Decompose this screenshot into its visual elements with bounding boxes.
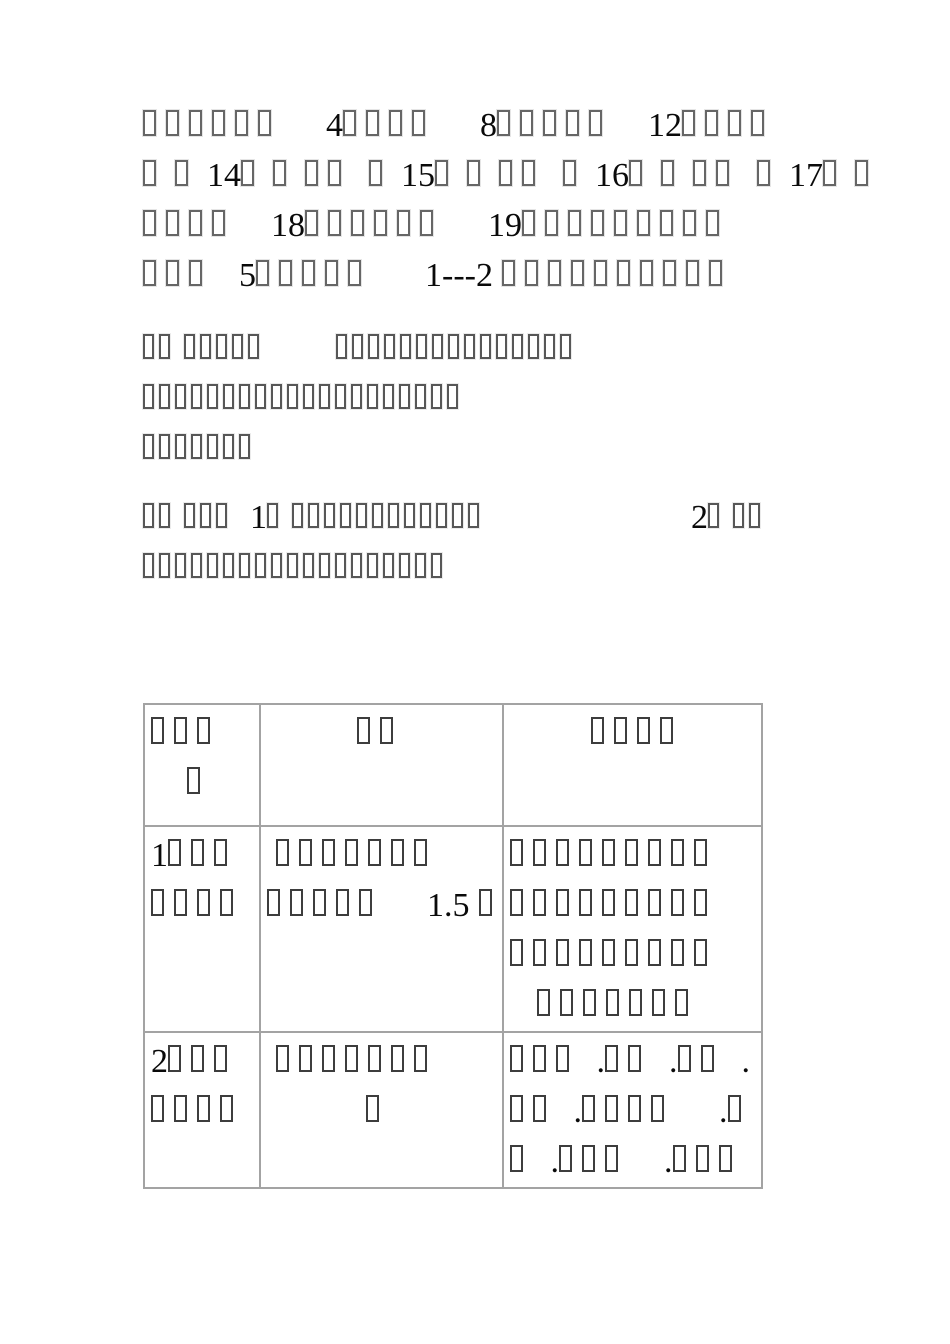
missing-glyph-box	[143, 503, 154, 528]
missing-glyph-box	[197, 889, 210, 916]
missing-glyph-box	[143, 334, 154, 359]
missing-glyph-box	[271, 384, 282, 409]
text-line	[143, 324, 873, 374]
missing-glyph-box	[255, 553, 266, 578]
missing-glyph-box	[706, 210, 719, 236]
missing-glyph-box	[625, 839, 638, 866]
missing-glyph-box	[548, 260, 561, 286]
missing-glyph-box	[415, 553, 426, 578]
cell-line: ..	[510, 1087, 761, 1137]
missing-glyph-box	[143, 160, 156, 186]
cell-line: ...	[510, 1037, 761, 1087]
missing-glyph-box	[308, 503, 319, 528]
document-table: 1 1.5 2	[143, 703, 763, 1189]
missing-glyph-box	[571, 260, 584, 286]
missing-glyph-box	[678, 1045, 691, 1072]
missing-glyph-box	[384, 334, 395, 359]
table-cell	[260, 1032, 503, 1188]
missing-glyph-box	[502, 260, 515, 286]
missing-glyph-box	[625, 889, 638, 916]
missing-glyph-box	[303, 553, 314, 578]
missing-glyph-box	[602, 839, 615, 866]
table-cell: 1	[144, 826, 260, 1032]
missing-glyph-box	[151, 889, 164, 916]
missing-glyph-box	[436, 503, 447, 528]
missing-glyph-box	[728, 1095, 741, 1122]
missing-glyph-box	[216, 334, 227, 359]
missing-glyph-box	[719, 1145, 732, 1172]
missing-glyph-box	[420, 210, 433, 236]
missing-glyph-box	[174, 889, 187, 916]
cell-line	[267, 709, 502, 759]
missing-glyph-box	[191, 384, 202, 409]
missing-glyph-box	[368, 839, 381, 866]
missing-glyph-box	[671, 889, 684, 916]
missing-glyph-box	[212, 210, 225, 236]
missing-glyph-box	[708, 503, 719, 528]
table-cell	[503, 826, 762, 1032]
paragraph-3: 12	[143, 493, 873, 593]
missing-glyph-box	[709, 260, 722, 286]
missing-glyph-box	[510, 839, 523, 866]
text-line: 12	[143, 493, 873, 543]
missing-glyph-box	[628, 1045, 641, 1072]
table-header-cell	[144, 704, 260, 826]
missing-glyph-box	[248, 334, 259, 359]
missing-glyph-box	[220, 1095, 233, 1122]
missing-glyph-box	[589, 110, 602, 136]
cell-line: 1	[151, 831, 259, 881]
missing-glyph-box	[191, 1045, 204, 1072]
missing-glyph-box	[591, 210, 604, 236]
missing-glyph-box	[733, 503, 744, 528]
missing-glyph-box	[543, 110, 556, 136]
missing-glyph-box	[258, 110, 271, 136]
missing-glyph-box	[352, 334, 363, 359]
missing-glyph-box	[728, 110, 741, 136]
missing-glyph-box	[175, 434, 186, 459]
missing-glyph-box	[397, 210, 410, 236]
missing-glyph-box	[391, 839, 404, 866]
missing-glyph-box	[464, 334, 475, 359]
cell-line	[151, 759, 259, 809]
missing-glyph-box	[336, 889, 349, 916]
missing-glyph-box	[683, 210, 696, 236]
missing-glyph-box	[380, 717, 393, 744]
missing-glyph-box	[267, 889, 280, 916]
missing-glyph-box	[673, 1145, 686, 1172]
document-content: 4812 14151617 1819 51---2 12	[143, 101, 873, 1189]
missing-glyph-box	[143, 434, 154, 459]
missing-glyph-box	[239, 553, 250, 578]
missing-glyph-box	[366, 110, 379, 136]
missing-glyph-box	[322, 839, 335, 866]
missing-glyph-box	[367, 553, 378, 578]
cell-line: 1.5	[267, 881, 502, 931]
cell-line	[267, 831, 502, 881]
missing-glyph-box	[545, 210, 558, 236]
missing-glyph-box	[602, 939, 615, 966]
missing-glyph-box	[216, 503, 227, 528]
missing-glyph-box	[663, 260, 676, 286]
missing-glyph-box	[267, 503, 278, 528]
missing-glyph-box	[823, 160, 836, 186]
missing-glyph-box	[537, 989, 550, 1016]
missing-glyph-box	[271, 553, 282, 578]
missing-glyph-box	[696, 1145, 709, 1172]
missing-glyph-box	[579, 889, 592, 916]
missing-glyph-box	[399, 553, 410, 578]
missing-glyph-box	[174, 717, 187, 744]
missing-glyph-box	[640, 260, 653, 286]
missing-glyph-box	[566, 110, 579, 136]
missing-glyph-box	[214, 839, 227, 866]
cell-line: ..	[510, 1137, 761, 1187]
missing-glyph-box	[189, 210, 202, 236]
missing-glyph-box	[614, 717, 627, 744]
missing-glyph-box	[512, 334, 523, 359]
missing-glyph-box	[348, 260, 361, 286]
text-line: 14151617	[143, 151, 873, 201]
missing-glyph-box	[369, 160, 382, 186]
missing-glyph-box	[431, 384, 442, 409]
table-cell: ... .. ..	[503, 1032, 762, 1188]
missing-glyph-box	[143, 384, 154, 409]
cell-line	[510, 709, 761, 759]
missing-glyph-box	[328, 210, 341, 236]
cell-line	[151, 881, 259, 931]
missing-glyph-box	[175, 553, 186, 578]
missing-glyph-box	[855, 160, 868, 186]
missing-glyph-box	[591, 717, 604, 744]
cell-line: 2	[151, 1037, 259, 1087]
missing-glyph-box	[319, 384, 330, 409]
missing-glyph-box	[159, 503, 170, 528]
missing-glyph-box	[388, 503, 399, 528]
missing-glyph-box	[212, 110, 225, 136]
missing-glyph-box	[159, 434, 170, 459]
missing-glyph-box	[143, 553, 154, 578]
paragraph-2	[143, 324, 873, 474]
missing-glyph-box	[533, 839, 546, 866]
missing-glyph-box	[336, 334, 347, 359]
missing-glyph-box	[168, 1045, 181, 1072]
missing-glyph-box	[191, 553, 202, 578]
missing-glyph-box	[325, 260, 338, 286]
missing-glyph-box	[328, 160, 341, 186]
missing-glyph-box	[374, 210, 387, 236]
missing-glyph-box	[682, 110, 695, 136]
missing-glyph-box	[560, 989, 573, 1016]
missing-glyph-box	[404, 503, 415, 528]
missing-glyph-box	[510, 1045, 523, 1072]
missing-glyph-box	[276, 1045, 289, 1072]
missing-glyph-box	[239, 384, 250, 409]
missing-glyph-box	[322, 1045, 335, 1072]
missing-glyph-box	[255, 384, 266, 409]
missing-glyph-box	[151, 1095, 164, 1122]
cell-line	[510, 831, 761, 881]
document-page: 4812 14151617 1819 51---2 12	[0, 0, 950, 1344]
missing-glyph-box	[235, 110, 248, 136]
missing-glyph-box	[602, 889, 615, 916]
missing-glyph-box	[452, 503, 463, 528]
missing-glyph-box	[391, 1045, 404, 1072]
missing-glyph-box	[648, 889, 661, 916]
table-header-cell	[503, 704, 762, 826]
missing-glyph-box	[559, 1145, 572, 1172]
missing-glyph-box	[184, 334, 195, 359]
missing-glyph-box	[191, 839, 204, 866]
missing-glyph-box	[299, 839, 312, 866]
missing-glyph-box	[448, 334, 459, 359]
missing-glyph-box	[497, 110, 510, 136]
missing-glyph-box	[400, 334, 411, 359]
missing-glyph-box	[191, 434, 202, 459]
missing-glyph-box	[749, 503, 760, 528]
missing-glyph-box	[345, 1045, 358, 1072]
missing-glyph-box	[605, 1045, 618, 1072]
missing-glyph-box	[628, 1095, 641, 1122]
missing-glyph-box	[693, 160, 706, 186]
missing-glyph-box	[468, 503, 479, 528]
text-line: 1819	[143, 201, 873, 251]
missing-glyph-box	[579, 839, 592, 866]
missing-glyph-box	[629, 160, 642, 186]
missing-glyph-box	[520, 110, 533, 136]
missing-glyph-box	[606, 989, 619, 1016]
missing-glyph-box	[351, 210, 364, 236]
missing-glyph-box	[372, 503, 383, 528]
missing-glyph-box	[340, 503, 351, 528]
missing-glyph-box	[435, 160, 448, 186]
cell-line	[151, 709, 259, 759]
missing-glyph-box	[522, 210, 535, 236]
missing-glyph-box	[496, 334, 507, 359]
cell-line	[510, 881, 761, 931]
text-line	[143, 424, 873, 474]
missing-glyph-box	[223, 553, 234, 578]
missing-glyph-box	[544, 334, 555, 359]
missing-glyph-box	[292, 503, 303, 528]
paragraph-1: 4812 14151617 1819 51---2	[143, 101, 873, 301]
missing-glyph-box	[189, 260, 202, 286]
missing-glyph-box	[159, 334, 170, 359]
missing-glyph-box	[166, 260, 179, 286]
cell-line	[267, 1037, 502, 1087]
missing-glyph-box	[389, 110, 402, 136]
missing-glyph-box	[414, 1045, 427, 1072]
missing-glyph-box	[357, 717, 370, 744]
missing-glyph-box	[675, 989, 688, 1016]
missing-glyph-box	[305, 160, 318, 186]
missing-glyph-box	[345, 839, 358, 866]
missing-glyph-box	[184, 503, 195, 528]
missing-glyph-box	[343, 110, 356, 136]
missing-glyph-box	[175, 160, 188, 186]
table-row: 1 1.5	[144, 826, 762, 1032]
missing-glyph-box	[412, 110, 425, 136]
missing-glyph-box	[661, 160, 674, 186]
missing-glyph-box	[279, 260, 292, 286]
missing-glyph-box	[694, 889, 707, 916]
missing-glyph-box	[533, 939, 546, 966]
missing-glyph-box	[582, 1095, 595, 1122]
missing-glyph-box	[716, 160, 729, 186]
missing-glyph-box	[582, 1145, 595, 1172]
missing-glyph-box	[694, 939, 707, 966]
missing-glyph-box	[143, 260, 156, 286]
missing-glyph-box	[479, 889, 492, 916]
missing-glyph-box	[579, 939, 592, 966]
missing-glyph-box	[175, 384, 186, 409]
missing-glyph-box	[432, 334, 443, 359]
missing-glyph-box	[241, 160, 254, 186]
table-row: 2 ... .. ..	[144, 1032, 762, 1188]
missing-glyph-box	[629, 989, 642, 1016]
missing-glyph-box	[174, 1095, 187, 1122]
missing-glyph-box	[290, 889, 303, 916]
missing-glyph-box	[302, 260, 315, 286]
missing-glyph-box	[207, 434, 218, 459]
missing-glyph-box	[335, 384, 346, 409]
missing-glyph-box	[556, 939, 569, 966]
table-cell: 1.5	[260, 826, 503, 1032]
missing-glyph-box	[614, 210, 627, 236]
missing-glyph-box	[368, 1045, 381, 1072]
missing-glyph-box	[159, 553, 170, 578]
missing-glyph-box	[605, 1095, 618, 1122]
missing-glyph-box	[366, 1095, 379, 1122]
missing-glyph-box	[705, 110, 718, 136]
missing-glyph-box	[757, 160, 770, 186]
missing-glyph-box	[651, 1095, 664, 1122]
missing-glyph-box	[447, 384, 458, 409]
missing-glyph-box	[313, 889, 326, 916]
cell-line	[151, 1087, 259, 1137]
missing-glyph-box	[273, 160, 286, 186]
missing-glyph-box	[686, 260, 699, 286]
missing-glyph-box	[560, 334, 571, 359]
missing-glyph-box	[223, 434, 234, 459]
missing-glyph-box	[652, 989, 665, 1016]
missing-glyph-box	[420, 503, 431, 528]
missing-glyph-box	[583, 989, 596, 1016]
missing-glyph-box	[671, 839, 684, 866]
missing-glyph-box	[207, 384, 218, 409]
table-cell: 2	[144, 1032, 260, 1188]
missing-glyph-box	[305, 210, 318, 236]
missing-glyph-box	[159, 384, 170, 409]
missing-glyph-box	[751, 110, 764, 136]
missing-glyph-box	[151, 717, 164, 744]
missing-glyph-box	[528, 334, 539, 359]
missing-glyph-box	[533, 889, 546, 916]
missing-glyph-box	[166, 210, 179, 236]
cell-line	[267, 1087, 502, 1137]
missing-glyph-box	[299, 1045, 312, 1072]
missing-glyph-box	[319, 553, 330, 578]
missing-glyph-box	[525, 260, 538, 286]
missing-glyph-box	[637, 717, 650, 744]
missing-glyph-box	[143, 210, 156, 236]
missing-glyph-box	[324, 503, 335, 528]
missing-glyph-box	[467, 160, 480, 186]
missing-glyph-box	[660, 717, 673, 744]
missing-glyph-box	[510, 939, 523, 966]
missing-glyph-box	[510, 1095, 523, 1122]
missing-glyph-box	[533, 1095, 546, 1122]
missing-glyph-box	[351, 553, 362, 578]
missing-glyph-box	[556, 839, 569, 866]
missing-glyph-box	[239, 434, 250, 459]
cell-line	[510, 931, 761, 981]
missing-glyph-box	[287, 553, 298, 578]
missing-glyph-box	[383, 384, 394, 409]
text-line	[143, 543, 873, 593]
missing-glyph-box	[480, 334, 491, 359]
cell-line	[510, 981, 761, 1031]
missing-glyph-box	[276, 839, 289, 866]
missing-glyph-box	[367, 384, 378, 409]
missing-glyph-box	[556, 1045, 569, 1072]
missing-glyph-box	[694, 839, 707, 866]
missing-glyph-box	[335, 553, 346, 578]
missing-glyph-box	[594, 260, 607, 286]
missing-glyph-box	[625, 939, 638, 966]
missing-glyph-box	[568, 210, 581, 236]
missing-glyph-box	[303, 384, 314, 409]
missing-glyph-box	[166, 110, 179, 136]
table-header-row	[144, 704, 762, 826]
missing-glyph-box	[351, 384, 362, 409]
text-line: 51---2	[143, 251, 873, 301]
missing-glyph-box	[431, 553, 442, 578]
missing-glyph-box	[499, 160, 512, 186]
missing-glyph-box	[197, 717, 210, 744]
missing-glyph-box	[522, 160, 535, 186]
missing-glyph-box	[414, 839, 427, 866]
missing-glyph-box	[383, 553, 394, 578]
missing-glyph-box	[701, 1045, 714, 1072]
missing-glyph-box	[648, 839, 661, 866]
missing-glyph-box	[510, 889, 523, 916]
missing-glyph-box	[287, 384, 298, 409]
missing-glyph-box	[359, 889, 372, 916]
missing-glyph-box	[671, 939, 684, 966]
missing-glyph-box	[556, 889, 569, 916]
missing-glyph-box	[415, 384, 426, 409]
missing-glyph-box	[399, 384, 410, 409]
missing-glyph-box	[189, 110, 202, 136]
missing-glyph-box	[197, 1095, 210, 1122]
missing-glyph-box	[223, 384, 234, 409]
missing-glyph-box	[232, 334, 243, 359]
missing-glyph-box	[563, 160, 576, 186]
missing-glyph-box	[416, 334, 427, 359]
missing-glyph-box	[648, 939, 661, 966]
missing-glyph-box	[214, 1045, 227, 1072]
text-line	[143, 374, 873, 424]
missing-glyph-box	[187, 767, 200, 794]
missing-glyph-box	[368, 334, 379, 359]
missing-glyph-box	[533, 1045, 546, 1072]
missing-glyph-box	[510, 1145, 523, 1172]
missing-glyph-box	[200, 334, 211, 359]
missing-glyph-box	[256, 260, 269, 286]
text-line: 4812	[143, 101, 873, 151]
missing-glyph-box	[220, 889, 233, 916]
